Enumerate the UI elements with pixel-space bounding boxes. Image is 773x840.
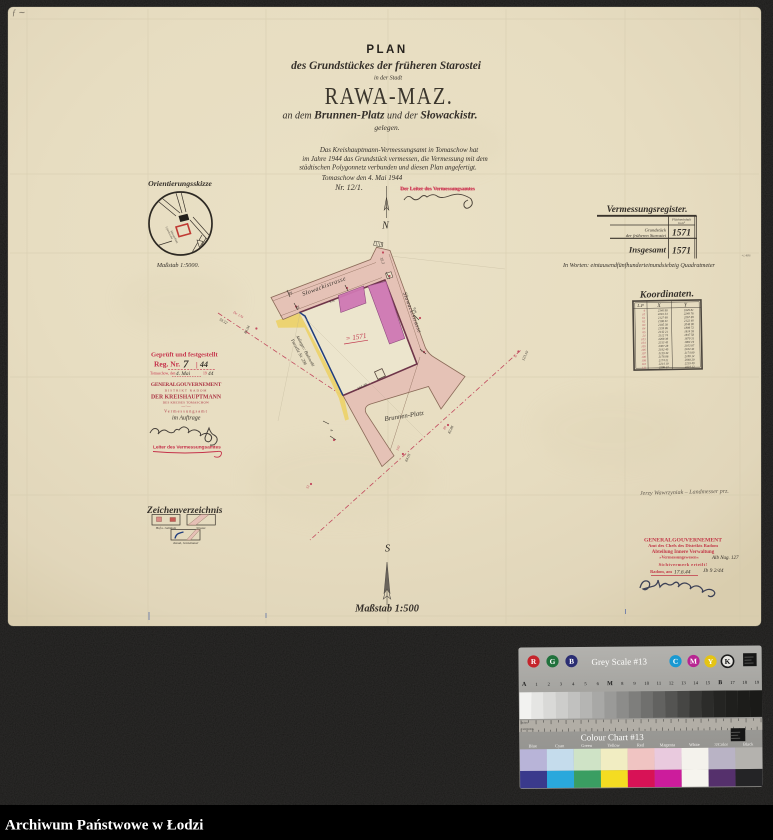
svg-text:14: 14	[693, 680, 698, 685]
svg-text:111: 111	[642, 366, 647, 370]
svg-text:Archiwum Państwowe w Łodzi: Archiwum Państwowe w Łodzi	[5, 818, 203, 834]
svg-text:PLAN: PLAN	[366, 44, 407, 56]
svg-text:R: R	[531, 657, 537, 666]
svg-text:C: C	[673, 657, 678, 666]
svg-text:3/Color: 3/Color	[715, 742, 729, 747]
svg-text:Alb Nag. 127: Alb Nag. 127	[711, 556, 739, 561]
svg-text:in m²: in m²	[678, 221, 686, 225]
svg-text:Jb 9 2/44: Jb 9 2/44	[703, 567, 724, 574]
svg-text:der früheren Starostei: der früheren Starostei	[626, 233, 667, 238]
svg-text:Cyan: Cyan	[555, 743, 565, 748]
svg-text:Nr. 12/1.: Nr. 12/1.	[334, 183, 363, 192]
svg-text:des Grundstückes der früheren: des Grundstückes der früheren Starostei	[291, 60, 482, 72]
svg-text:gelegen.: gelegen.	[374, 123, 399, 132]
svg-text:Leiter des Vermessungsamtes: Leiter des Vermessungsamtes	[153, 445, 221, 451]
svg-text:7: 7	[183, 359, 189, 371]
svg-text:13: 13	[681, 680, 686, 685]
svg-text:ƒ ∼: ƒ ∼	[12, 8, 25, 17]
svg-text:S: S	[385, 544, 391, 555]
svg-text:Magenta: Magenta	[660, 742, 675, 747]
svg-text:Centimetres: Centimetres	[521, 728, 534, 731]
svg-text:Geprüft und festgestellt: Geprüft und festgestellt	[151, 352, 218, 359]
svg-text:Insgesamt: Insgesamt	[628, 245, 667, 255]
svg-text:19: 19	[203, 372, 207, 376]
svg-text:+1.4936: +1.4936	[742, 255, 752, 258]
svg-text:Orientierungsskizze: Orientierungsskizze	[148, 179, 212, 188]
svg-text:Das Kreishauptmann-Vermessungs: Das Kreishauptmann-Vermessungsamt in Tom…	[319, 147, 479, 154]
svg-text:»Vermessungswesen«: »Vermessungswesen«	[659, 555, 698, 560]
svg-text:GENERALGOUVERNEMENT: GENERALGOUVERNEMENT	[151, 382, 222, 388]
svg-text:17: 17	[730, 680, 735, 685]
svg-text:In Worten: eintausendfünfhunde: In Worten: eintausendfünfhunderteinundsi…	[562, 262, 716, 269]
svg-text:Yellow: Yellow	[607, 743, 620, 748]
svg-text:DISTRIKT RADOM: DISTRIKT RADOM	[165, 389, 208, 393]
svg-text:Vermessungsregister.: Vermessungsregister.	[607, 205, 688, 215]
svg-text:M: M	[607, 681, 613, 687]
svg-text:Inches: Inches	[521, 721, 528, 724]
svg-text:an dem Brunnen-Platz und der S: an dem Brunnen-Platz und der Słowackistr…	[282, 110, 477, 122]
svg-text:Maßstab 1:500: Maßstab 1:500	[354, 604, 420, 615]
svg-text:15: 15	[706, 680, 711, 685]
svg-text:M: M	[690, 657, 697, 666]
svg-text:44: 44	[199, 360, 208, 369]
svg-text:44: 44	[208, 371, 214, 377]
svg-text:2234 13: 2234 13	[685, 365, 695, 369]
svg-text:18: 18	[742, 680, 747, 685]
svg-text:Amt des Chefs des Distrikts Ra: Amt des Chefs des Distrikts Radom	[648, 543, 718, 548]
svg-text:Grey Scale #13: Grey Scale #13	[591, 656, 647, 666]
svg-text:Maßstab 1:5000.: Maßstab 1:5000.	[156, 262, 199, 269]
svg-text:Red: Red	[637, 742, 645, 747]
svg-text:19: 19	[755, 680, 760, 685]
svg-text:Sichtvermerk erteilt!: Sichtvermerk erteilt!	[659, 562, 708, 567]
svg-text:G: G	[550, 657, 556, 666]
svg-text:RAWA-MAZ.: RAWA-MAZ.	[325, 82, 454, 109]
svg-text:L.P: L.P	[636, 303, 644, 308]
svg-text:B: B	[569, 657, 574, 666]
svg-text:Grundstück: Grundstück	[645, 228, 667, 233]
svg-text:Blue: Blue	[529, 743, 537, 748]
svg-text:Koordinaten.: Koordinaten.	[639, 288, 694, 300]
svg-text:11: 11	[657, 681, 662, 686]
svg-text:A: A	[522, 682, 527, 688]
svg-text:städtischen Polygonnetz verbun: städtischen Polygonnetz verbunden und di…	[299, 165, 477, 172]
svg-text:1571: 1571	[672, 229, 691, 239]
svg-text:im Auftrage: im Auftrage	[172, 415, 201, 422]
svg-text:Black: Black	[743, 742, 754, 747]
svg-text:im Jahre 1944 das Grundstück v: im Jahre 1944 das Grundstück vermessen, …	[302, 156, 487, 163]
svg-text:10: 10	[644, 681, 649, 686]
svg-text:Green: Green	[581, 743, 593, 748]
svg-text:2209 17: 2209 17	[659, 365, 669, 369]
svg-text:Y: Y	[708, 657, 714, 666]
svg-text:N: N	[381, 221, 390, 232]
svg-text:K: K	[725, 657, 731, 666]
svg-text:Radom, am: Radom, am	[650, 569, 672, 574]
svg-text:in der Stadt: in der Stadt	[374, 76, 402, 82]
svg-text:White: White	[689, 742, 700, 747]
svg-text:1571: 1571	[672, 247, 691, 257]
svg-text:Vermessungsamt: Vermessungsamt	[164, 409, 208, 414]
svg-text:B: B	[718, 680, 722, 686]
svg-text:17.6.44: 17.6.44	[674, 569, 691, 576]
svg-text:4. Mai: 4. Mai	[176, 371, 191, 377]
svg-text:—·—: —·—	[180, 403, 191, 408]
svg-text:Tomaschow den 4. Mai 1944: Tomaschow den 4. Mai 1944	[322, 174, 403, 182]
svg-text:Colour Chart #13: Colour Chart #13	[581, 732, 645, 743]
svg-text:Reg. Nr.: Reg. Nr.	[154, 360, 180, 369]
svg-text:Der Leiter des Vermessungsamte: Der Leiter des Vermessungsamtes	[400, 186, 475, 192]
svg-text:12: 12	[669, 681, 674, 686]
